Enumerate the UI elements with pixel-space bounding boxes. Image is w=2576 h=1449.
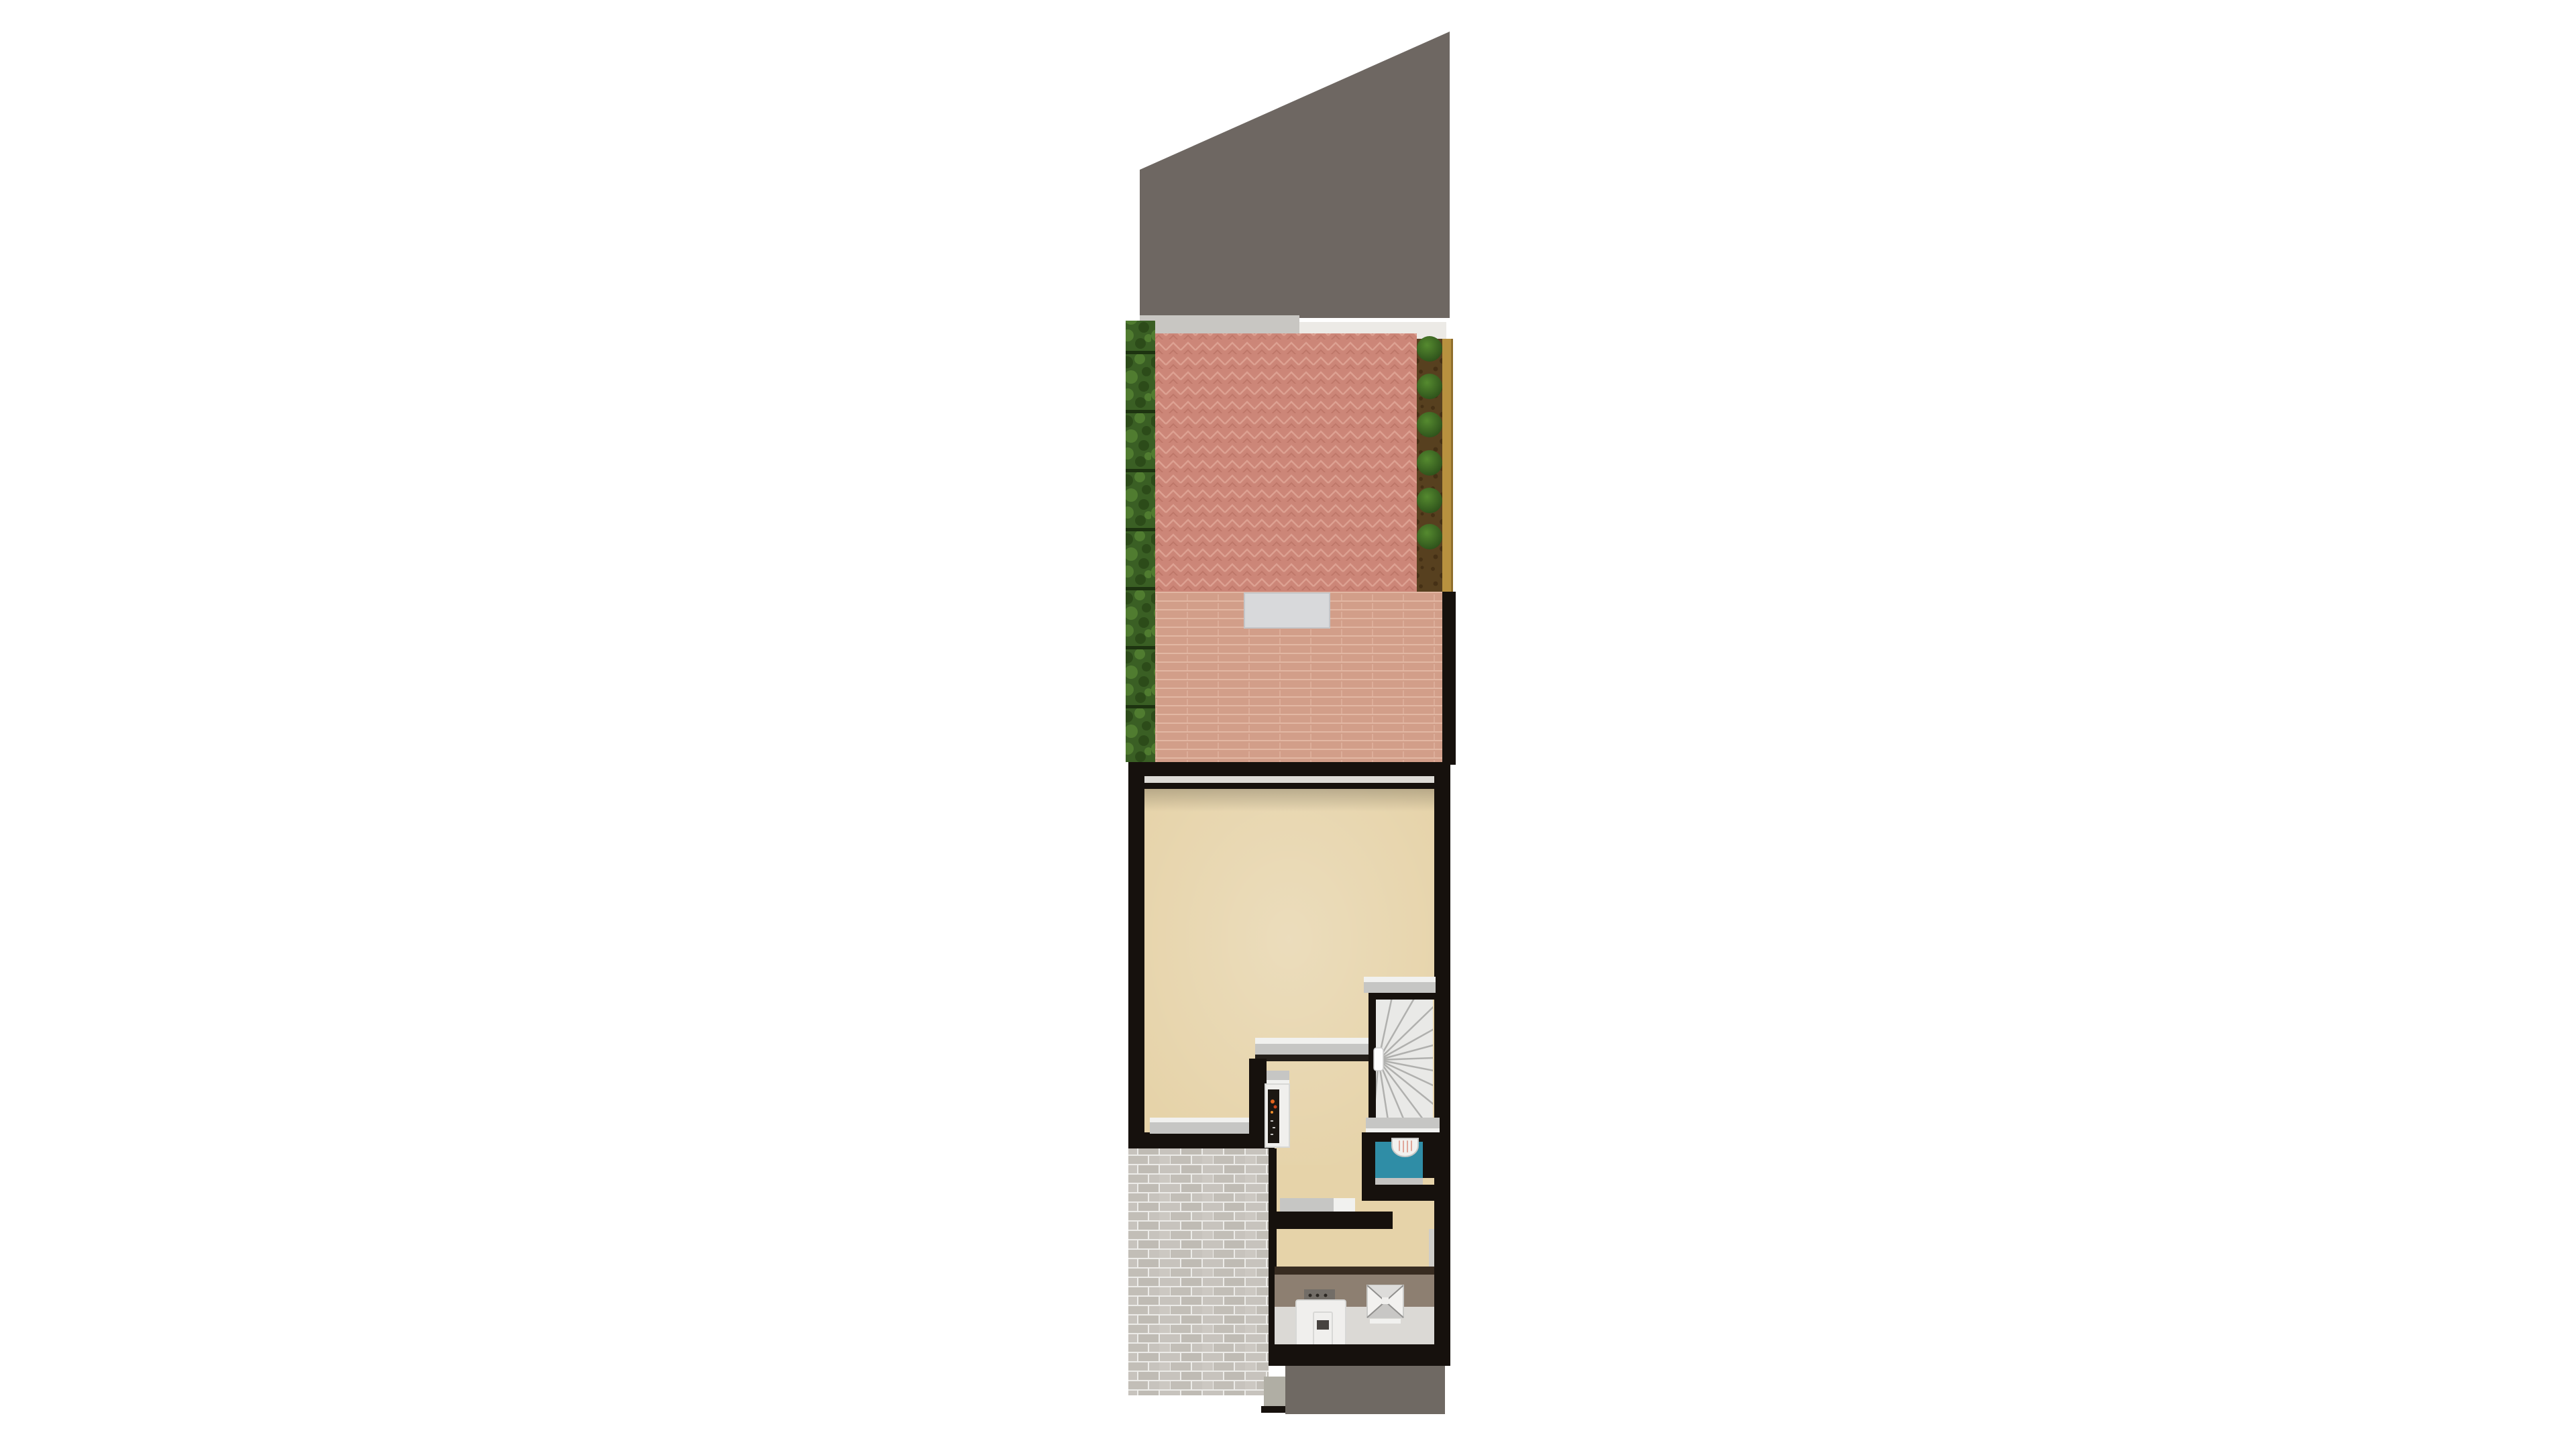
bathroom-bottom-wall <box>1362 1185 1450 1201</box>
stair-bottom-sill-edge <box>1366 1128 1440 1132</box>
shrub <box>1417 524 1442 549</box>
stair-cap <box>1364 982 1436 993</box>
window-sill <box>1150 1122 1257 1134</box>
stove-detail <box>1271 1134 1273 1135</box>
stove-ember <box>1274 1106 1277 1109</box>
back-garden <box>1126 321 1456 765</box>
counter-back-edge <box>1275 1267 1434 1275</box>
herringbone-terrace <box>1155 333 1417 592</box>
toilet-basin <box>1392 1138 1418 1157</box>
stove-ember <box>1271 1099 1275 1104</box>
shrub <box>1417 412 1442 437</box>
hedge <box>1126 321 1155 762</box>
panel-knob <box>1316 1294 1320 1297</box>
shrub <box>1417 488 1442 513</box>
bathroom-right-wall <box>1423 1142 1450 1178</box>
garden-top-wall-gray <box>1140 315 1299 334</box>
left-wall <box>1128 762 1144 1148</box>
sink-front-rail <box>1370 1319 1401 1324</box>
bottom-wall <box>1260 1344 1450 1366</box>
brick-driveway <box>1128 1148 1269 1395</box>
top-wall <box>1128 762 1450 789</box>
stove-detail <box>1273 1127 1275 1128</box>
stair-cap-wall <box>1371 993 1436 1000</box>
divider-counter-edge <box>1255 1038 1374 1044</box>
shrub <box>1417 374 1442 399</box>
stair-cap-edge <box>1364 977 1436 982</box>
garden-right-wall <box>1442 592 1456 765</box>
top-wall-plinth <box>1140 776 1436 783</box>
bathroom <box>1362 1132 1450 1201</box>
stair-newel <box>1374 1048 1383 1071</box>
floor-plan-svg <box>0 0 2576 1449</box>
doorstep <box>1264 1377 1285 1406</box>
doormat <box>1244 593 1330 628</box>
living-room-top-shadow <box>1144 789 1434 812</box>
bathroom-left-wall <box>1362 1142 1375 1185</box>
panel-knob <box>1324 1294 1328 1297</box>
floor-plan-canvas <box>0 0 2576 1449</box>
garden-fence-edge <box>1451 339 1453 592</box>
front-terrace <box>1285 1366 1445 1414</box>
fireplace-wall <box>1249 1059 1267 1148</box>
divider-counter-top <box>1255 1044 1374 1055</box>
stove-ember <box>1271 1111 1273 1114</box>
doorstep-edge <box>1261 1406 1285 1413</box>
appliance-slot <box>1317 1320 1329 1330</box>
stove-detail <box>1271 1120 1273 1122</box>
hallway-threshold-gray <box>1280 1198 1334 1212</box>
sink-drain <box>1382 1297 1389 1304</box>
right-wall <box>1434 762 1450 1366</box>
shrub <box>1417 336 1442 362</box>
stove-cap <box>1267 1071 1289 1081</box>
divider-counter-shadow <box>1255 1055 1374 1061</box>
shrub <box>1417 450 1442 476</box>
stove-window <box>1268 1089 1279 1143</box>
panel-knob <box>1309 1294 1312 1297</box>
hallway-threshold-white <box>1334 1198 1355 1212</box>
window-sill-edge <box>1150 1118 1257 1122</box>
utility-room-top-wall <box>1275 1212 1393 1229</box>
